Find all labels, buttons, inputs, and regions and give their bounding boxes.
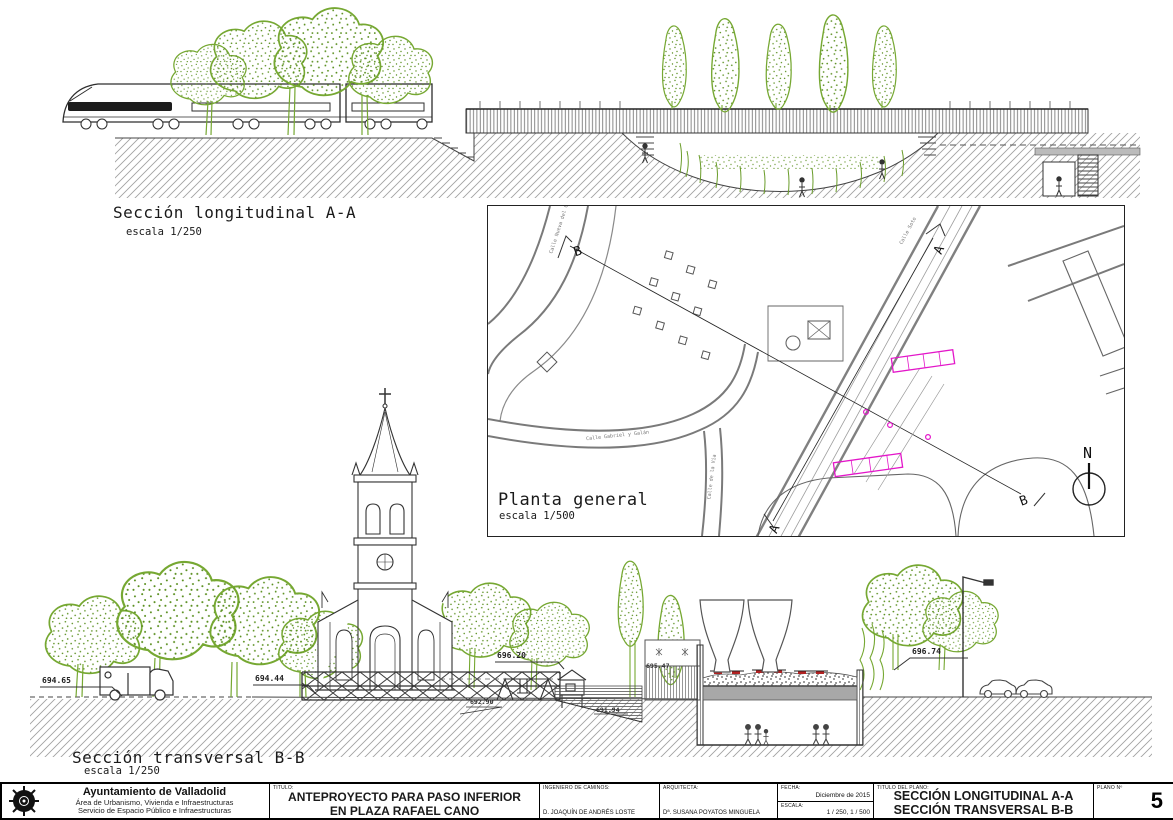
- plan-number-cell: PLANO Nº 5: [1094, 784, 1171, 818]
- date-value: Diciembre de 2015: [815, 792, 870, 799]
- ayuntamiento-logo-icon: [8, 785, 40, 817]
- ground-hatch-top: [115, 133, 1140, 198]
- elev-platform-right: 696.74: [912, 647, 941, 656]
- cars: [980, 680, 1052, 698]
- architect-label: ARQUITECTA:: [663, 785, 698, 791]
- elev-deck-top: 696.20: [497, 651, 526, 660]
- trees-top-mid: [663, 15, 897, 112]
- title-block: Ayuntamiento de Valladolid Área de Urban…: [0, 782, 1173, 820]
- engineer-label: INGENIERO DE CAMINOS:: [543, 785, 610, 791]
- plan-number-label: PLANO Nº: [1097, 785, 1122, 791]
- org-line3: Servicio de Espacio Público e Infraestru…: [40, 807, 269, 816]
- truck: [100, 667, 173, 700]
- entrance-structure: [645, 640, 700, 700]
- elev-left: 694.65: [42, 676, 71, 685]
- longitudinal-title: Sección longitudinal A-A: [113, 203, 356, 222]
- plan-title-line1: SECCIÓN LONGITUDINAL A-A: [874, 789, 1093, 803]
- transversal-scale: escala 1/250: [84, 765, 160, 777]
- project-title-line1: ANTEPROYECTO PARA PASO INFERIOR: [270, 791, 539, 805]
- marker-a-top: A: [931, 243, 948, 257]
- scale-value: 1 / 250, 1 / 500: [827, 809, 870, 816]
- magenta-ramp-north: [891, 350, 954, 372]
- street-soto: Calle Soto: [899, 216, 918, 245]
- drawing-sheet: Sección longitudinal A-A escala 1/250: [0, 0, 1173, 820]
- date-row: FECHA: Diciembre de 2015: [778, 784, 873, 802]
- scale-label: ESCALA:: [781, 803, 804, 809]
- engineer-cell: INGENIERO DE CAMINOS: D. JOAQUÍN DE ANDR…: [540, 784, 660, 818]
- org-name: Ayuntamiento de Valladolid: [40, 786, 269, 799]
- architect-cell: ARQUITECTA: Dª. SUSANA POYATOS MINGUELA: [660, 784, 778, 818]
- plan-title-line2: SECCIÓN TRANSVERSAL B-B: [874, 803, 1093, 817]
- plan-trees: [537, 247, 734, 372]
- plan-title-cell: TITULO DEL PLANO: SECCIÓN LONGITUDINAL A…: [874, 784, 1094, 818]
- org-cell: Ayuntamiento de Valladolid Área de Urban…: [2, 784, 270, 818]
- elev-deck-right: 695.47: [646, 662, 670, 670]
- project-title-line2: EN PLAZA RAFAEL CANO: [270, 805, 539, 819]
- elev-playground: 692.90: [470, 698, 494, 706]
- church: [315, 388, 455, 690]
- date-label: FECHA:: [781, 785, 801, 791]
- vase-planters: [700, 600, 792, 672]
- elev-street-left: 694.44: [255, 674, 284, 683]
- truss-walkway: [302, 672, 560, 700]
- project-title-cell: TITULO: ANTEPROYECTO PARA PASO INFERIOR …: [270, 784, 540, 818]
- section-longitudinal-drawing: [40, 5, 1150, 203]
- architect-name: Dª. SUSANA POYATOS MINGUELA: [663, 810, 760, 816]
- date-scale-cell: FECHA: Diciembre de 2015 ESCALA: 1 / 250…: [778, 784, 874, 818]
- trees-bottom-right: [860, 565, 998, 690]
- scale-row: ESCALA: 1 / 250, 1 / 500: [778, 802, 873, 819]
- longitudinal-scale: escala 1/250: [126, 226, 202, 238]
- elev-stairs: 691.94: [596, 706, 620, 714]
- section-transversal-drawing: 694.65 694.44 696.20 692.90 691.94 695.4…: [0, 378, 1173, 782]
- engineer-name: D. JOAQUÍN DE ANDRÉS LOSTE: [543, 810, 635, 816]
- plan-number: 5: [1151, 788, 1163, 814]
